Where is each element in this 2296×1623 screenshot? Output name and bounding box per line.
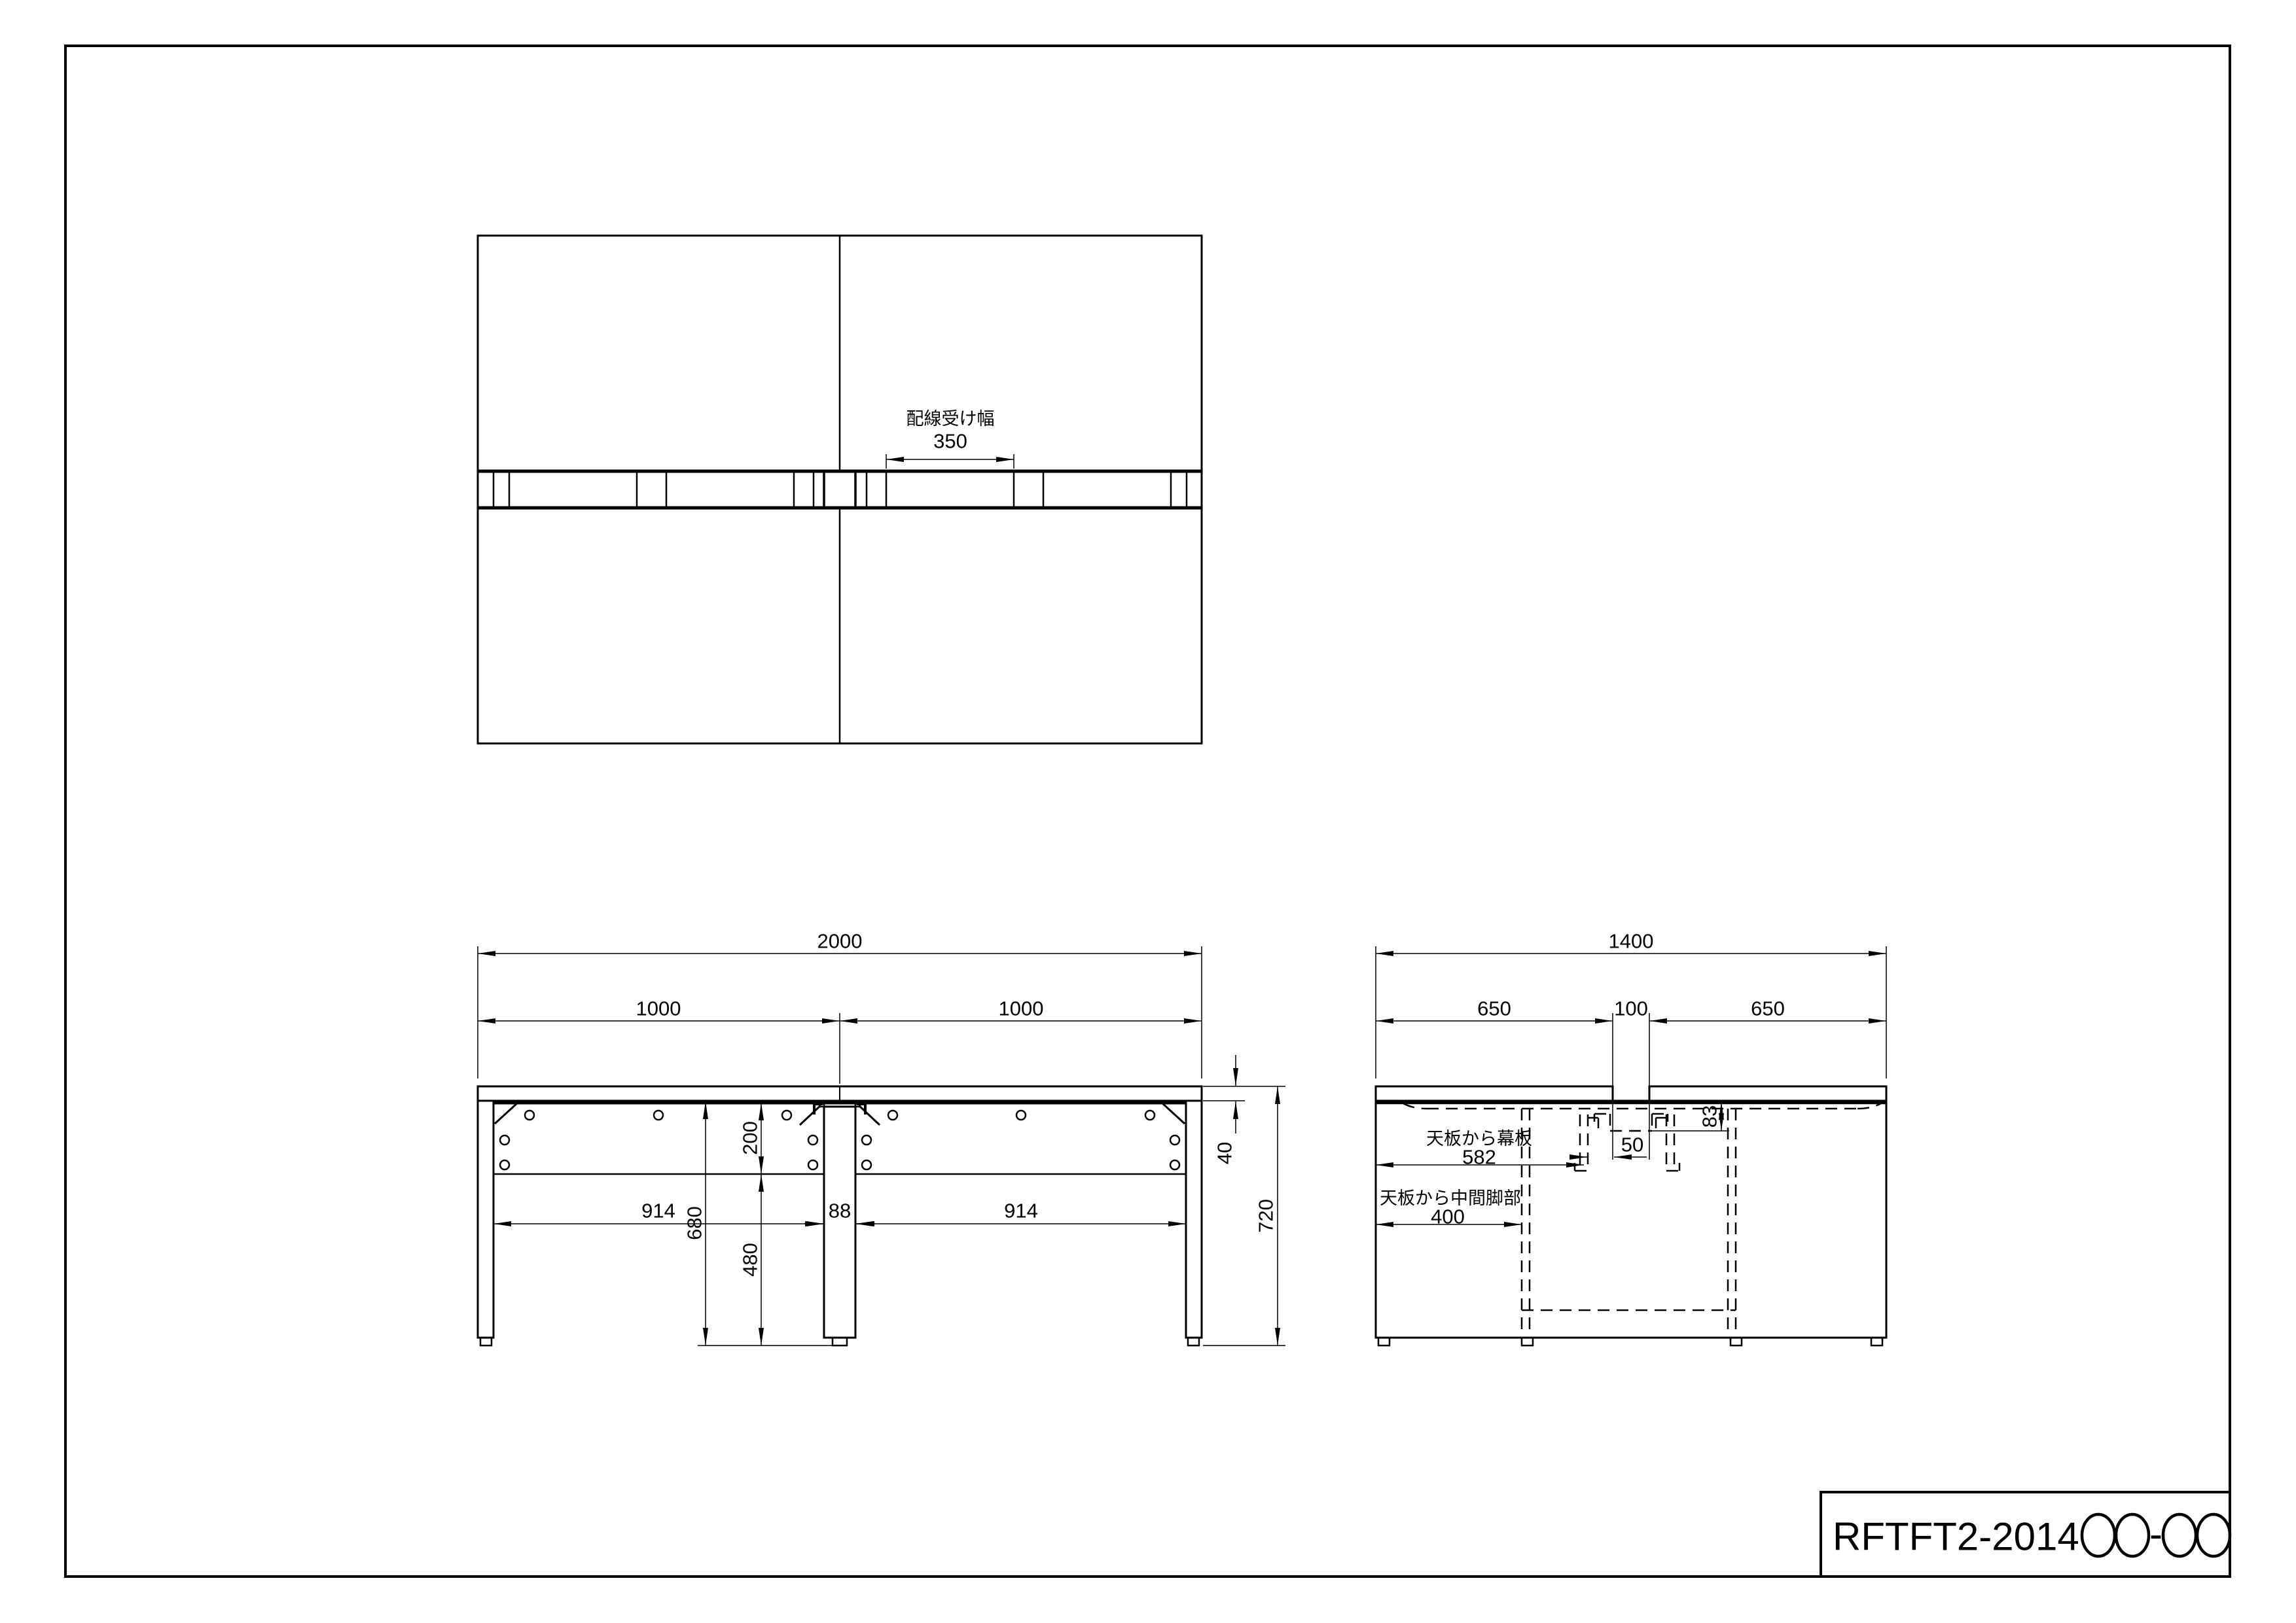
foot	[1731, 1338, 1742, 1346]
dim-panel-clearance: 50	[1571, 1133, 1647, 1158]
dim-overall-width-text: 2000	[817, 930, 863, 953]
dim-panel-height-text: 200	[739, 1121, 762, 1155]
panel-clearance-text: 50	[1621, 1133, 1643, 1156]
cable-tray-dividers	[493, 471, 1187, 508]
dim-tray-depth: 83	[1652, 1102, 1729, 1131]
dim-left-span-text: 914	[641, 1200, 675, 1222]
dim-top-thickness: 40	[1203, 1055, 1285, 1164]
cable-width-value: 350	[933, 430, 967, 453]
tabletops-side	[1376, 1086, 1886, 1101]
dim-total-height-text: 720	[1255, 1199, 1278, 1233]
corner-brace	[859, 1105, 880, 1125]
drawing-sheet: 配線受け幅 350	[0, 0, 2296, 1623]
cable-tray-band	[478, 471, 1202, 508]
center-leg	[814, 1101, 865, 1346]
modesty-panel-left	[493, 1102, 824, 1174]
dim-cable-width: 配線受け幅 350	[886, 409, 1014, 469]
product-code-prefix: RFTFT2-2014	[1833, 1515, 2079, 1559]
corner-brace	[495, 1103, 518, 1124]
dim-right-depth-text: 650	[1751, 997, 1785, 1020]
dim-right-half-text: 1000	[999, 997, 1044, 1020]
sheet-border-frame	[65, 46, 2230, 1577]
placeholder-circle	[2163, 1514, 2196, 1556]
cable-width-label: 配線受け幅	[906, 409, 995, 429]
hidden-modesty-panel-left	[1575, 1115, 1598, 1171]
dim-center-leg-text: 88	[829, 1200, 851, 1222]
dim-left-half-text: 1000	[636, 997, 681, 1020]
title-block: RFTFT2-2014 -	[1821, 1492, 2230, 1577]
top-to-midleg-value: 400	[1431, 1205, 1465, 1228]
left-leg	[478, 1101, 493, 1346]
dim-top-thickness-text: 40	[1213, 1142, 1236, 1164]
product-code-placeholder-circles: -	[2082, 1512, 2230, 1557]
foot	[1378, 1338, 1390, 1346]
dim-top-to-midleg: 天板から中間脚部 400	[1376, 1188, 1522, 1228]
placeholder-circle	[2197, 1514, 2230, 1556]
dim-half-widths: 1000 1000	[478, 997, 1202, 1084]
dim-undertop-to-floor-text: 680	[683, 1206, 706, 1240]
hidden-modesty-panel-right	[1656, 1115, 1679, 1171]
side-view: 1400 650 100 650 天板から幕板 582 天板から中間脚	[1376, 930, 1886, 1346]
top-view: 配線受け幅 350	[478, 236, 1202, 743]
side-dimensions: 1400 650 100 650 天板から幕板 582 天板から中間脚	[1376, 930, 1886, 1228]
product-code-separator: -	[2149, 1512, 2162, 1556]
dim-top-to-panel: 天板から幕板 582	[1376, 1129, 1584, 1169]
screw-holes-left-panel	[500, 1111, 817, 1169]
left-leg-foot	[480, 1338, 492, 1346]
dim-leg-spans: 914 88 914	[493, 1177, 1186, 1229]
foot	[1871, 1338, 1882, 1346]
dim-left-depth-text: 650	[1477, 997, 1511, 1020]
dim-panel-to-floor-text: 480	[739, 1243, 762, 1277]
right-leg-foot	[1188, 1338, 1199, 1346]
placeholder-circle	[2116, 1514, 2149, 1556]
modesty-panel-right	[855, 1102, 1186, 1174]
tray-depth-text: 83	[1698, 1105, 1721, 1128]
dim-overall-depth-text: 1400	[1609, 930, 1654, 953]
dim-gap-text: 100	[1614, 997, 1648, 1020]
front-dimensions: 2000 1000 1000 914 88 914	[478, 930, 1285, 1346]
front-view: 2000 1000 1000 914 88 914	[478, 930, 1285, 1346]
dim-right-span-text: 914	[1004, 1200, 1038, 1222]
screw-holes-right-panel	[862, 1111, 1179, 1169]
top-to-panel-value: 582	[1462, 1146, 1496, 1169]
center-leg-foot	[833, 1338, 847, 1346]
foot	[1522, 1338, 1533, 1346]
corner-brace	[800, 1105, 821, 1125]
right-leg	[1186, 1101, 1202, 1346]
dim-total-height: 720	[1203, 1086, 1285, 1346]
corner-brace	[1162, 1103, 1185, 1124]
placeholder-circle	[2082, 1514, 2115, 1556]
